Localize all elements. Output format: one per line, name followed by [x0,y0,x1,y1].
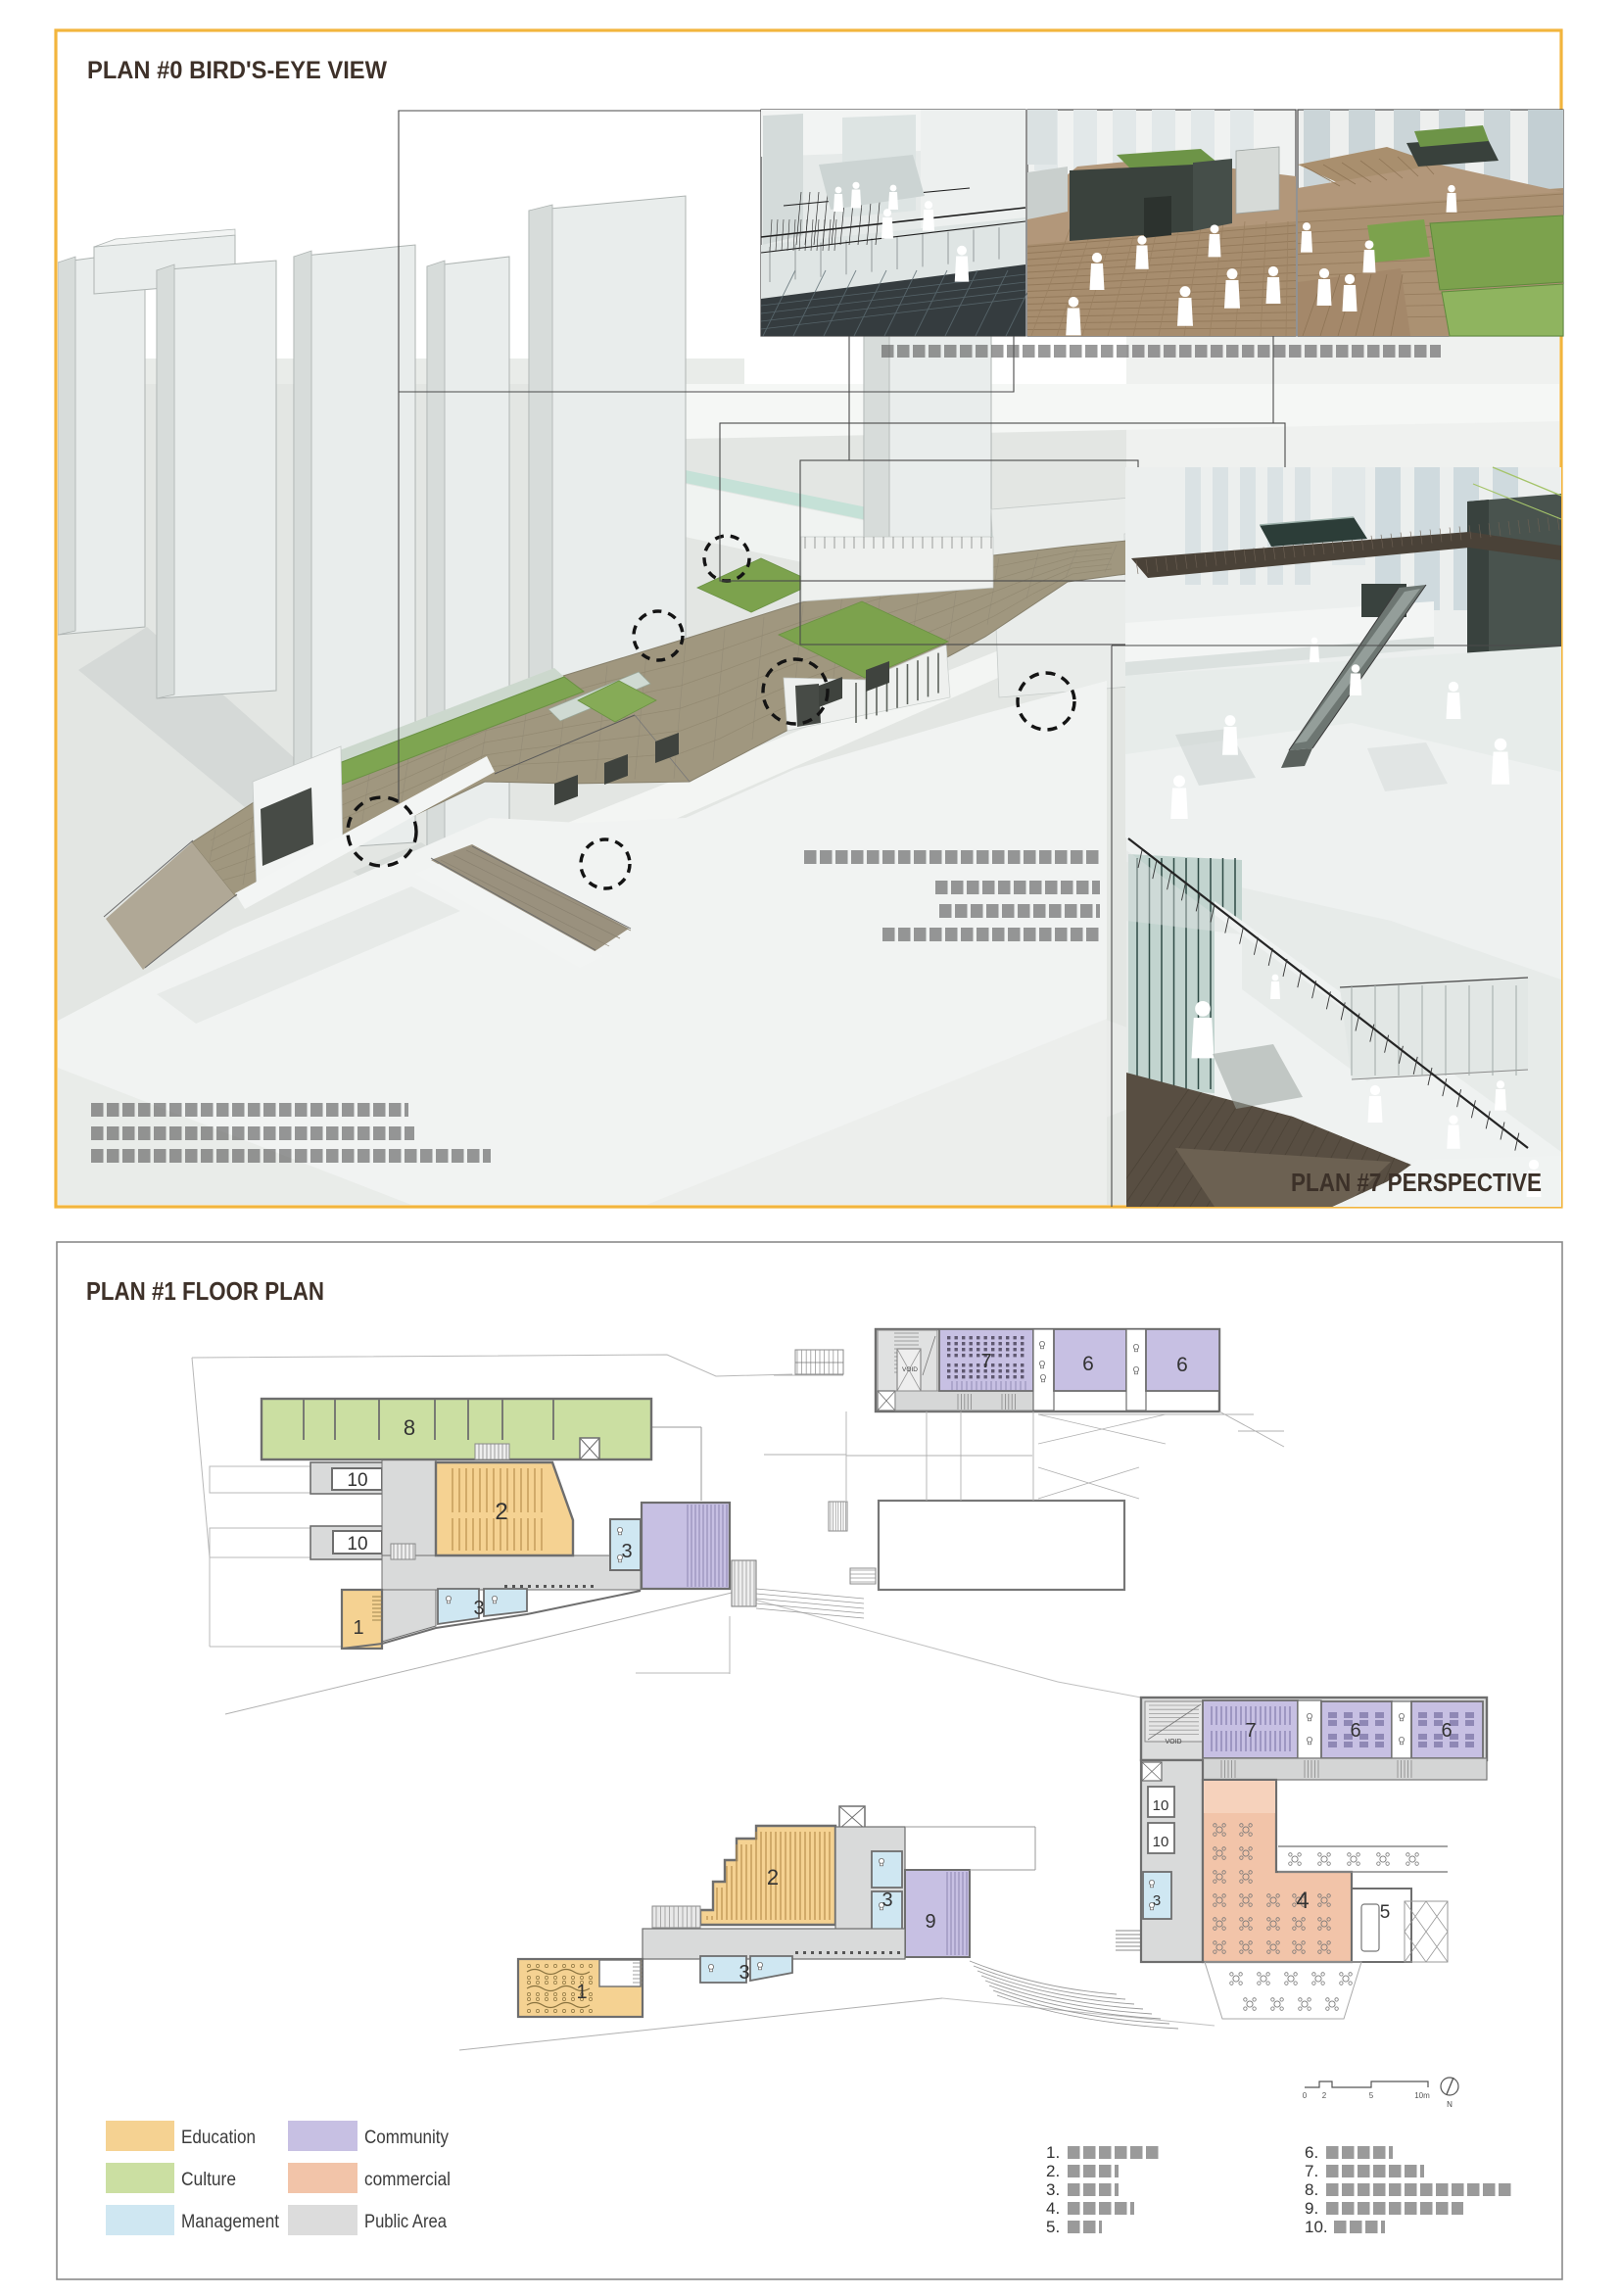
svg-text:4: 4 [1296,1888,1309,1914]
svg-text:10: 10 [1153,1797,1169,1814]
svg-text:2.: 2. [1046,2162,1060,2180]
svg-text:3: 3 [621,1541,632,1562]
svg-text:0: 0 [1303,2091,1308,2100]
svg-text:Management: Management [181,2212,280,2232]
svg-text:7.: 7. [1305,2162,1318,2180]
svg-text:6.: 6. [1305,2143,1318,2162]
svg-text:VOID: VOID [902,1366,918,1373]
svg-text:PLAN #7 PERSPECTIVE: PLAN #7 PERSPECTIVE [1291,1168,1542,1197]
svg-text:VOID: VOID [1165,1739,1181,1746]
svg-text:9: 9 [925,1911,935,1933]
svg-text:2: 2 [767,1865,779,1889]
svg-text:1: 1 [353,1617,363,1639]
svg-text:5.: 5. [1046,2218,1060,2236]
svg-text:8.: 8. [1305,2180,1318,2199]
svg-text:PLAN #0 BIRD'S-EYE VIEW: PLAN #0 BIRD'S-EYE VIEW [87,57,387,84]
svg-text:3: 3 [881,1889,892,1911]
svg-text:5: 5 [1369,2091,1374,2100]
svg-text:7: 7 [980,1351,991,1372]
svg-text:Public Area: Public Area [364,2212,447,2232]
svg-text:N: N [1447,2100,1453,2109]
svg-text:2: 2 [1322,2091,1327,2100]
svg-text:3.: 3. [1046,2180,1060,2199]
svg-text:6: 6 [1176,1354,1188,1376]
svg-text:5: 5 [1380,1902,1391,1923]
svg-text:6: 6 [1350,1720,1360,1742]
svg-text:10.: 10. [1305,2218,1328,2236]
svg-text:1.: 1. [1046,2143,1060,2162]
svg-text:4.: 4. [1046,2199,1060,2218]
svg-text:1: 1 [576,1982,587,2003]
svg-text:Community: Community [364,2128,449,2148]
svg-text:6: 6 [1441,1720,1452,1742]
svg-text:10: 10 [1153,1834,1169,1850]
svg-text:3: 3 [739,1962,749,1984]
svg-text:PLAN #1 FLOOR PLAN: PLAN #1 FLOOR PLAN [86,1276,324,1306]
svg-text:2: 2 [495,1499,507,1525]
svg-text:8: 8 [404,1415,415,1440]
svg-text:10: 10 [347,1470,367,1491]
svg-text:3: 3 [1153,1892,1161,1909]
svg-text:Culture: Culture [181,2170,236,2190]
svg-text:10: 10 [347,1534,367,1555]
svg-text:commercial: commercial [364,2170,451,2190]
svg-text:6: 6 [1082,1353,1094,1375]
svg-text:Education: Education [181,2128,256,2148]
svg-text:7: 7 [1245,1720,1256,1742]
svg-text:9.: 9. [1305,2199,1318,2218]
svg-text:3: 3 [473,1598,484,1619]
svg-text:10m: 10m [1414,2091,1430,2100]
